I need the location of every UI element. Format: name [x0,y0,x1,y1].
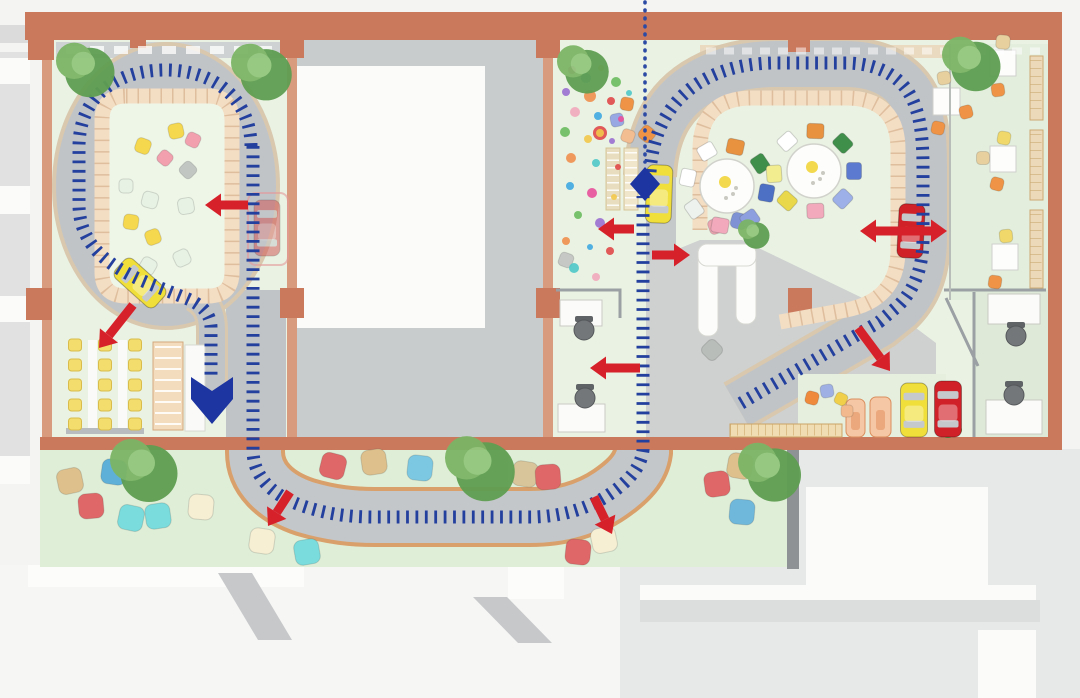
play-toy [592,273,600,281]
play-toy [560,127,570,137]
terrace-pouf [535,464,562,491]
play-toy [618,116,624,122]
desk [558,404,605,432]
cushion [999,229,1013,243]
yellow-chair [99,399,112,411]
cushion [991,83,1006,98]
lounger-pad [876,410,885,430]
terrace-pouf [144,502,172,530]
car-red-parked [935,381,962,437]
yellow-chair [129,359,142,371]
play-toy [611,77,621,87]
terrace-pouf [564,538,591,565]
play-toy [626,90,632,96]
table-dot [821,171,825,175]
play-toy [609,138,615,144]
play-toy [611,194,617,200]
car-windshield [938,391,959,399]
wall-bottom-band [40,437,1062,450]
wall-column [28,40,54,60]
terrace-pouf [116,503,146,533]
play-mat [606,148,620,210]
left-strip-cut [0,456,30,484]
table-chair [807,123,825,139]
cushion [177,197,196,216]
wall-bench [1030,56,1043,120]
wall-mid-right [543,40,553,437]
car-roof [939,405,958,422]
play-toy [569,263,579,273]
wall-left-thin [42,40,52,437]
cushion [930,120,945,135]
long-table [88,340,97,430]
cushion [996,130,1011,145]
desk [988,294,1040,324]
wall-bench [1030,130,1043,200]
cushion [167,122,185,140]
wall-column [280,288,304,318]
play-toy [615,164,621,170]
terrace-pouf [703,470,731,498]
floor-plan [0,0,1080,698]
yellow-chair [69,379,82,391]
yellow-chair [129,418,142,430]
car-yellow-parked [901,383,928,437]
table-centerpiece [719,176,731,188]
tree-canopy [958,46,981,69]
terrace-pouf [77,492,104,519]
terrace-pouf [293,538,322,567]
car-roof [258,224,276,241]
yellow-chair [99,418,112,430]
table-chair [758,183,776,202]
play-toy [592,159,600,167]
cushion [977,152,990,165]
tree-canopy [755,453,780,478]
white-band-left [28,565,304,587]
terrace-pouf [248,527,276,555]
terrace-pouf [728,498,755,525]
cafe-table [933,88,960,115]
plaza-white-block [806,487,988,587]
yellow-chair [99,359,112,371]
table-chair [847,163,862,180]
play-toy [607,97,615,105]
central-white-block [297,66,485,328]
wall-bench [1030,210,1043,288]
terrace-pouf [406,454,433,481]
cushion [123,214,140,231]
table-dot [734,186,738,190]
tree-canopy [128,450,155,477]
wall-column [536,40,560,58]
left-strip-cut [0,58,30,84]
cushion [988,275,1003,290]
terrace-pouf [55,466,85,496]
wall-right [1048,12,1062,450]
yellow-chair [69,418,82,430]
table-centerpiece [806,161,818,173]
yellow-chair [69,399,82,411]
table-chair [710,217,729,235]
yellow-chair [129,339,142,351]
play-toy [562,237,570,245]
play-toy [574,211,582,219]
car-windshield [257,210,277,218]
terrace-pouf [360,448,388,476]
play-toy [584,135,592,143]
play-toy [587,244,593,250]
play-toy [566,182,574,190]
play-toy [606,247,614,255]
table-chair [679,168,697,188]
desk-chair [1004,385,1024,405]
play-toy [570,107,580,117]
cushion [119,179,133,193]
white-small-block [508,565,564,599]
wall-top-band [25,12,1062,40]
yellow-chair [69,359,82,371]
wall-column [280,40,304,58]
cafe-table [990,146,1016,172]
table-dot [818,177,822,181]
table-dot [731,192,735,196]
cushion [841,405,853,417]
cushion [819,383,834,398]
cushion [936,70,951,85]
striped-shelf [153,342,183,430]
play-toy [587,188,597,198]
plaza-white-block [978,630,1036,698]
play-toy [566,153,576,163]
table-chair [725,138,745,156]
table-chair [766,165,782,183]
play-toy [596,129,604,137]
table-dot [811,181,815,185]
left-sidewalk-strip [0,52,30,482]
tree-canopy [72,52,95,75]
left-strip-cut [0,186,30,214]
table-dot [724,196,728,200]
tree-canopy [247,53,271,77]
wall-column [26,288,52,320]
floor-plan-svg [0,0,1080,698]
cushion [619,96,634,111]
desk-chair [575,388,595,408]
plaza-gray-band [640,600,1040,622]
kiosk-counter [698,244,756,266]
car-roof [905,406,924,422]
plaza-white-strip [640,585,1036,600]
cushion [995,34,1010,49]
cafe-table [992,244,1018,270]
wall-column [536,288,560,318]
yellow-chair [129,399,142,411]
play-toy [562,88,570,96]
yellow-chair [129,379,142,391]
long-table [118,340,127,430]
left-strip-cut [0,296,30,322]
tree-canopy [746,224,759,237]
desk-chair [1006,326,1026,346]
yellow-chair [99,379,112,391]
car-windshield [904,393,925,401]
tree-canopy [571,53,592,74]
tree-canopy [464,447,492,475]
car-red-ghost [254,200,280,256]
desk-chair [574,320,594,340]
terrace-pouf [187,493,214,520]
play-toy [594,112,602,120]
table-chair [807,203,825,219]
yellow-chair [69,339,82,351]
